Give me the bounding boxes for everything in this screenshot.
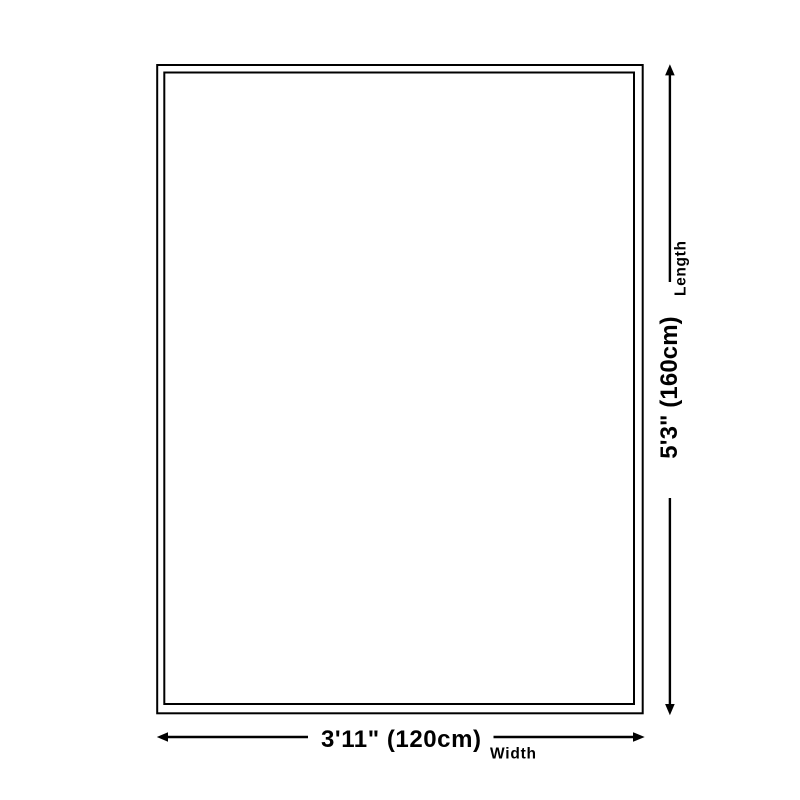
svg-text:Length: Length [673, 241, 690, 296]
svg-text:3'11" (120cm): 3'11" (120cm) [321, 726, 481, 753]
svg-text:Width: Width [490, 745, 536, 762]
svg-text:5'3" (160cm): 5'3" (160cm) [656, 316, 683, 458]
